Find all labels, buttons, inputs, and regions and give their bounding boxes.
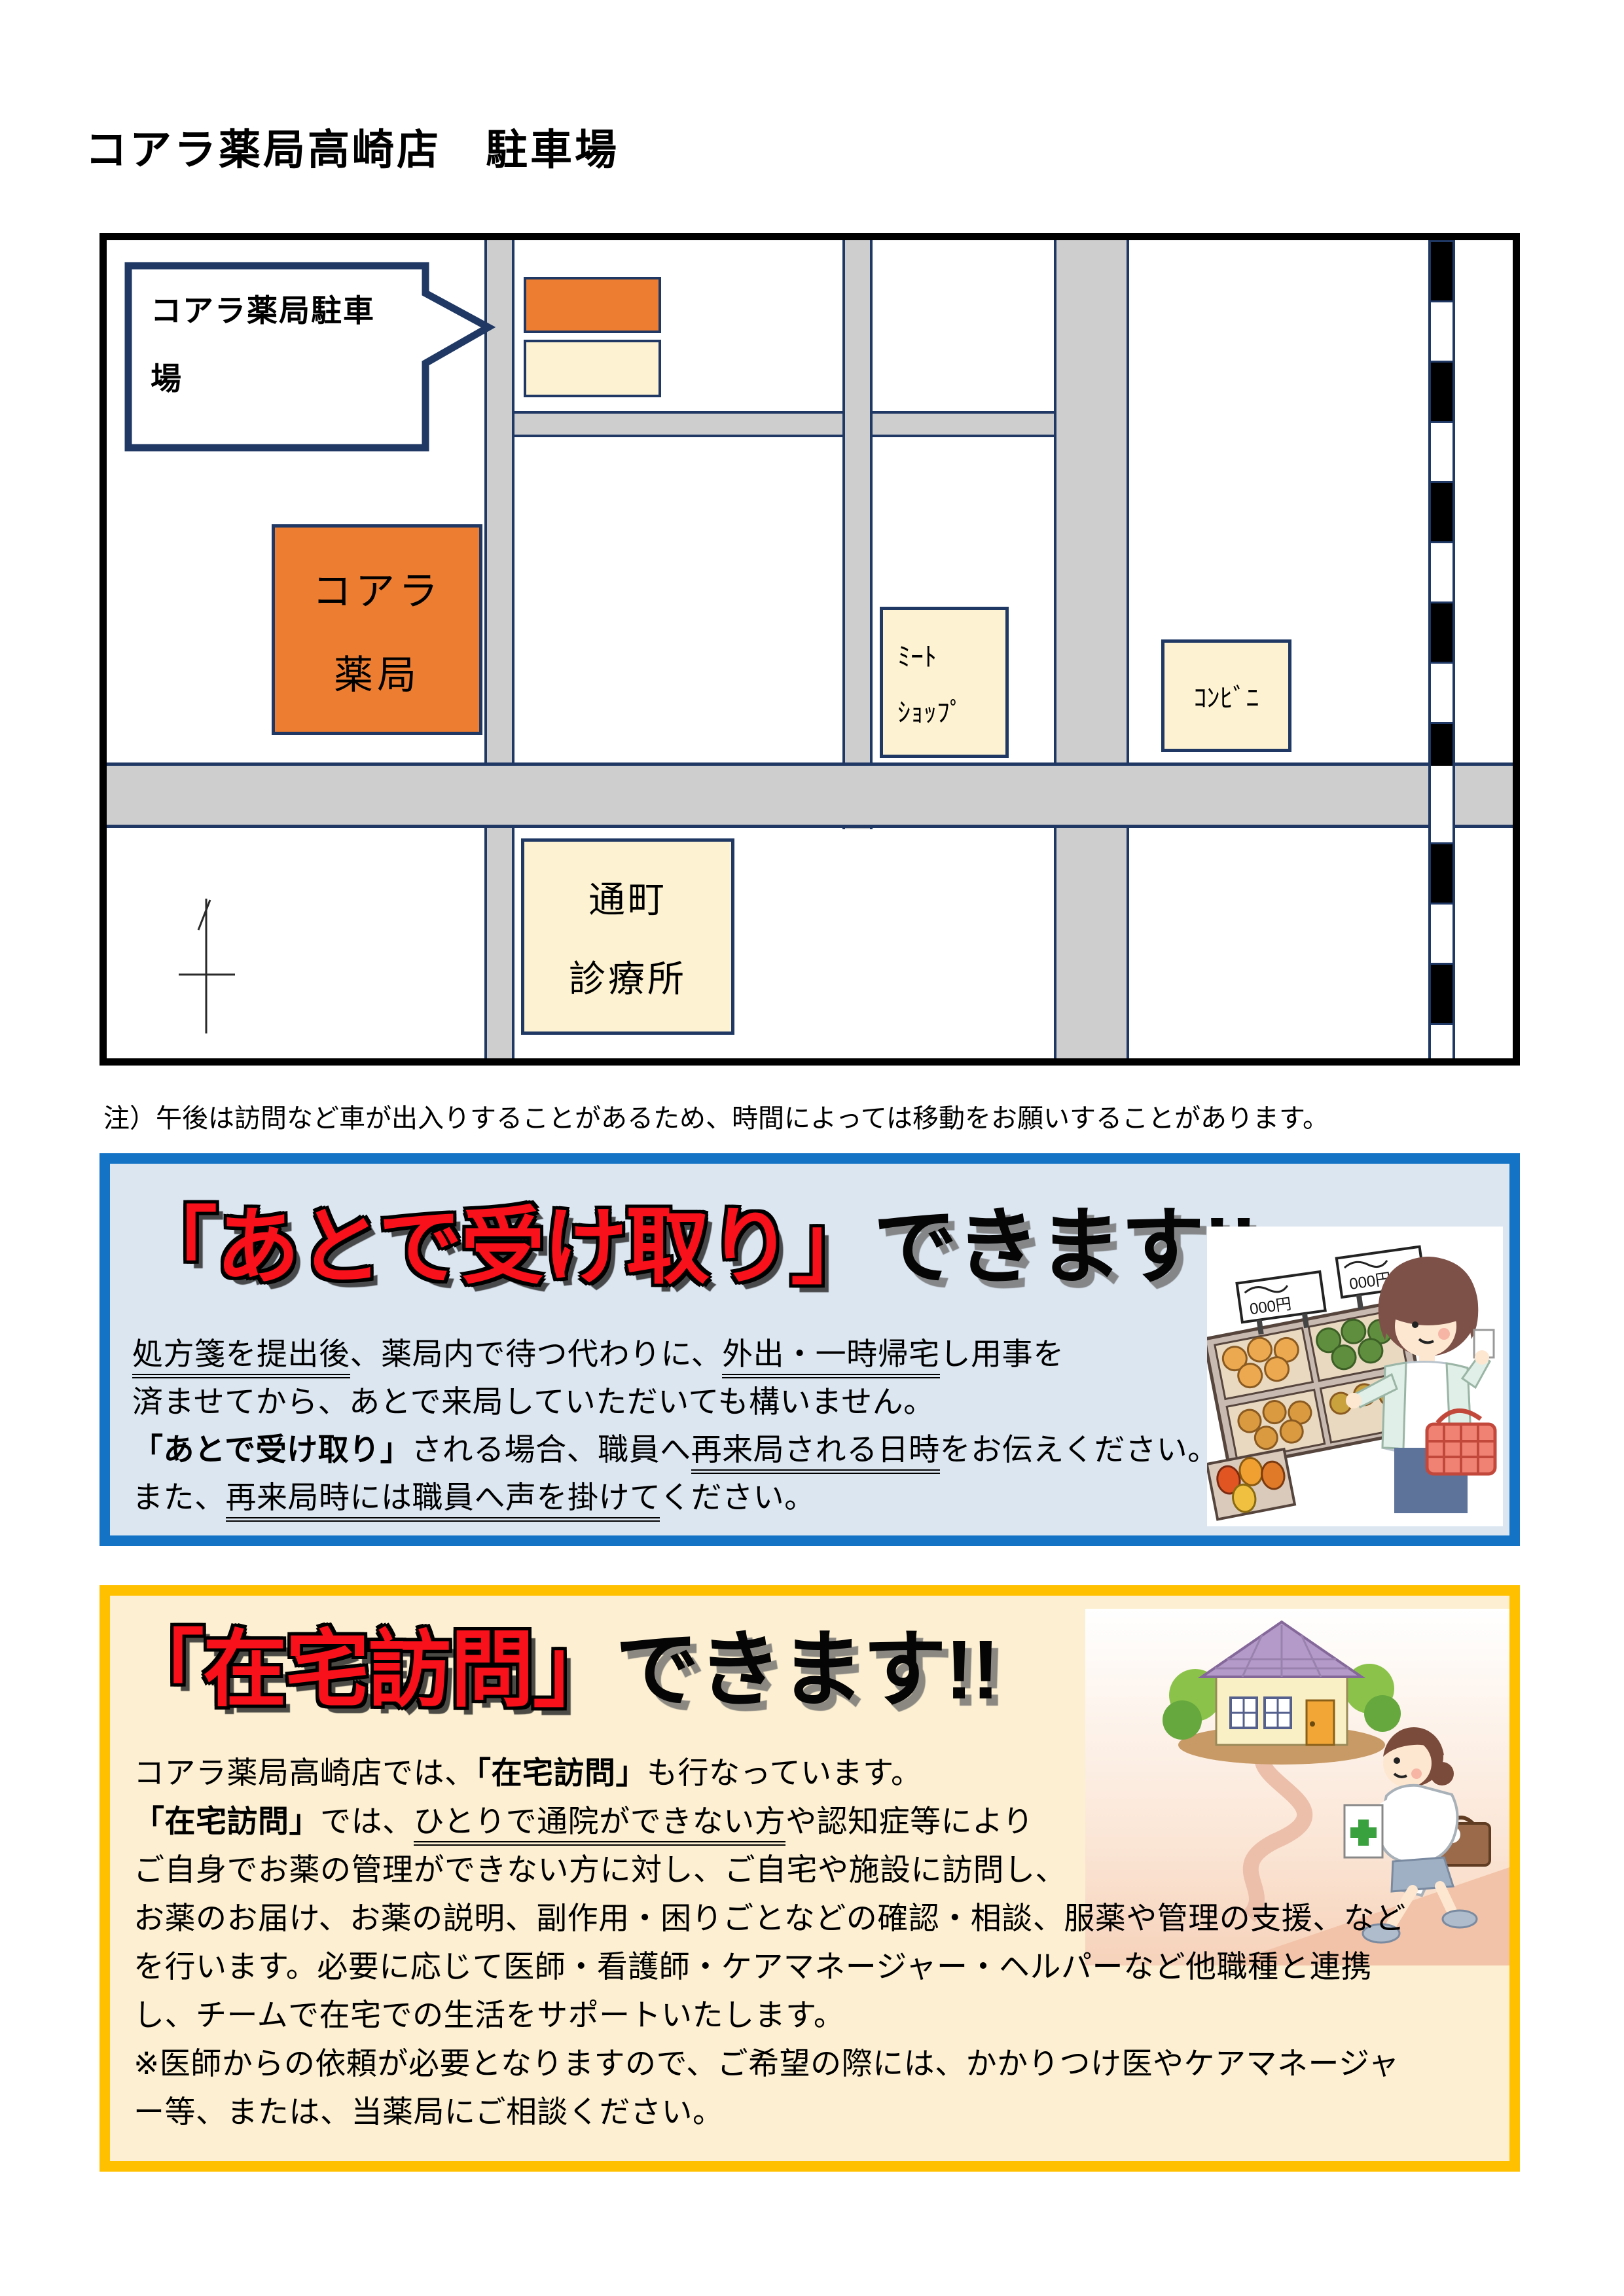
meat-shop-label-line1: ﾐｰﾄ	[897, 636, 937, 673]
later-pickup-title-red: 「あとで受け取り」	[134, 1200, 873, 1294]
parking-spot-orange	[524, 277, 661, 333]
home-visit-line-6: し、チームで在宅での生活をサポートいたします。	[134, 1996, 844, 2035]
map-road-vertical-wide	[1054, 240, 1129, 1058]
later-pickup-title-black: できます!!	[873, 1200, 1256, 1294]
home-visit-title-black: できます!!	[615, 1623, 998, 1717]
home-visit-line-8: ー等、または、当薬局にご相談ください。	[134, 2093, 724, 2132]
home-visit-line-7: ※医師からの依頼が必要となりますので、ご希望の際には、かかりつけ医やケアマネージ…	[134, 2045, 1399, 2083]
map-building-convenience-store: ｺﾝﾋﾞﾆ	[1161, 639, 1291, 752]
callout-text-line2: 場	[151, 353, 183, 399]
home-visit-line-3: ご自身でお薬の管理ができない方に対し、ご自宅や施設に訪問し、	[134, 1851, 1066, 1890]
home-visit-line-1: コアラ薬局高崎店では、「在宅訪問」も行なっています。	[134, 1754, 922, 1793]
shopping-illustration: 000円 000円	[1207, 1227, 1503, 1526]
page-title: コアラ薬局高崎店 駐車場	[85, 117, 619, 177]
later-pickup-line-3: 「あとで受け取り」される場合、職員へ再来局される日時をお伝えください。	[132, 1431, 1219, 1469]
later-pickup-line-2: 済ませてから、あとで来局していただいても構いません。	[132, 1383, 935, 1422]
parking-callout: コアラ薬局駐車 場	[124, 262, 517, 452]
pharmacy-label-line2: 薬局	[334, 643, 420, 700]
map-note: 注）午後は訪問など車が出入りすることがあるため、時間によっては移動をお願いするこ…	[103, 1097, 1329, 1135]
callout-text-line1: コアラ薬局駐車	[151, 285, 375, 331]
home-visit-line-2: 「在宅訪問」では、ひとりで通院ができない方や認知症等により	[134, 1803, 1034, 1841]
map-building-meat-shop: ﾐｰﾄ ｼｮｯﾌﾟ	[880, 607, 1009, 758]
home-visit-title: 「在宅訪問」できます!!	[120, 1624, 998, 1717]
later-pickup-line-1: 処方箋を提出後、薬局内で待つ代わりに、外出・一時帰宅し用事を	[132, 1335, 1064, 1374]
map-road-vertical-middle	[842, 240, 873, 829]
home-visit-line-5: を行います。必要に応じて医師・看護師・ケアマネージャー・ヘルパーなど他職種と連携	[134, 1948, 1372, 1986]
pharmacy-label-line1: コアラ	[312, 560, 442, 617]
clinic-label-line1: 通町	[588, 870, 667, 924]
clinic-label-line2: 診療所	[569, 950, 687, 1003]
meat-shop-label-line2: ｼｮｯﾌﾟ	[897, 691, 963, 729]
flyer-page: コアラ薬局高崎店 駐車場 コアラ薬局駐車 場 コアラ 薬局 通町 診療所	[0, 0, 1624, 2296]
map-building-koala-pharmacy: コアラ 薬局	[272, 524, 482, 735]
map-road-horizontal-small	[514, 411, 1056, 437]
shopping-illustration-art: 000円 000円	[1207, 1227, 1503, 1526]
railway-crossing	[1431, 766, 1453, 825]
home-visit-box: 「在宅訪問」できます!!	[99, 1585, 1520, 2172]
home-visit-title-red: 「在宅訪問」	[120, 1623, 615, 1717]
railway-track	[1428, 240, 1455, 1058]
convenience-store-label: ｺﾝﾋﾞﾆ	[1194, 677, 1259, 715]
home-visit-line-4: お薬のお届け、お薬の説明、副作用・困りごとなどの確認・相談、服薬や管理の支援、な…	[134, 1899, 1406, 1938]
map-road-horizontal-main	[107, 762, 1513, 828]
parking-spot-cream	[524, 340, 661, 397]
utility-pole-icon	[172, 895, 251, 1039]
later-pickup-box: 「あとで受け取り」できます!! 処方箋を提出後、薬局内で待つ代わりに、外出・一時…	[99, 1153, 1520, 1546]
map-building-tohri-clinic: 通町 診療所	[521, 838, 734, 1035]
later-pickup-title: 「あとで受け取り」できます!!	[134, 1202, 1256, 1294]
later-pickup-line-4: また、再来局時には職員へ声を掛けてください。	[132, 1479, 816, 1517]
access-map: コアラ薬局駐車 場 コアラ 薬局 通町 診療所 ﾐｰﾄ ｼｮｯﾌﾟ ｺﾝﾋﾞﾆ	[99, 233, 1520, 1066]
